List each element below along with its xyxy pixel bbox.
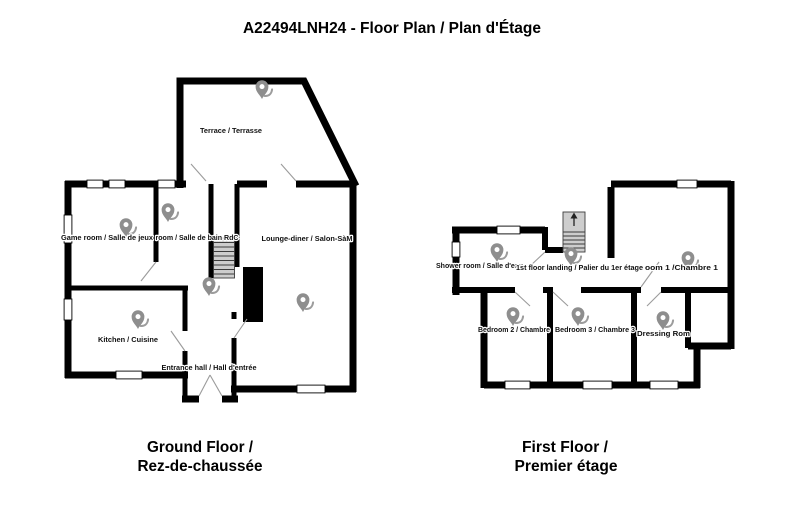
first-floor-windows bbox=[452, 180, 697, 389]
ground-floor-caption-line2: Rez-de-chaussée bbox=[138, 458, 263, 475]
first-floor-caption-line2: Premier étage bbox=[515, 458, 618, 475]
ground-floor-caption-line1: Ground Floor / bbox=[147, 439, 254, 456]
room-label-game-room: Game room / Salle de jeux bbox=[61, 233, 153, 242]
first-floor-walls bbox=[452, 181, 731, 388]
ground-floor-stairs bbox=[214, 238, 235, 278]
location-pin-icon bbox=[297, 293, 314, 312]
room-label-dressing-room: Dressing Rom bbox=[637, 329, 691, 338]
location-pin-icon bbox=[491, 243, 508, 262]
location-pin-icon bbox=[507, 307, 523, 326]
room-label-bedroom-3: Bedroom 3 / Chambre 3 bbox=[555, 325, 635, 334]
first-floor-stairs bbox=[563, 212, 585, 252]
room-label-lounge-diner: Lounge-diner / Salon-SàM bbox=[262, 234, 353, 243]
location-pin-icon bbox=[203, 277, 220, 296]
floor-plan-page: A22494LNH24 - Floor Plan / Plan d'Étage bbox=[0, 0, 800, 511]
room-label-terrace: Terrace / Terrasse bbox=[200, 126, 262, 135]
room-label-kitchen: Kitchen / Cuisine bbox=[98, 335, 158, 344]
location-pin-icon bbox=[657, 311, 674, 330]
room-label-bathroom-rdc: room / Salle de bain RdC bbox=[156, 233, 240, 242]
chimney-block bbox=[243, 267, 263, 322]
room-label-bedroom-2: Bedroom 2 / Chambre bbox=[478, 325, 550, 334]
first-floor-doors bbox=[515, 252, 661, 306]
room-label-shower-room: Shower room / Salle d'eau bbox=[436, 261, 523, 270]
location-pin-icon bbox=[572, 307, 589, 326]
ground-floor-doors bbox=[141, 164, 296, 396]
room-label-bedroom-1: oom 1 /Chambre 1 bbox=[645, 263, 718, 272]
room-label-landing: 1st floor landing / Palier du 1er étage bbox=[516, 263, 643, 272]
floor-plan-canvas: A22494LNH24 - Floor Plan / Plan d'Étage bbox=[0, 0, 800, 511]
ground-floor-plan: Terrace / Terrasse Game room / Salle de … bbox=[61, 80, 356, 399]
location-pin-icon bbox=[162, 203, 179, 222]
first-floor-caption-line1: First Floor / bbox=[522, 439, 609, 456]
page-title: A22494LNH24 - Floor Plan / Plan d'Étage bbox=[243, 20, 541, 37]
location-pin-icon bbox=[132, 310, 149, 329]
room-label-entrance-hall: Entrance hall / Hall d'entrée bbox=[162, 363, 257, 372]
first-floor-plan: Shower room / Salle d'eau 1st floor land… bbox=[436, 180, 731, 389]
